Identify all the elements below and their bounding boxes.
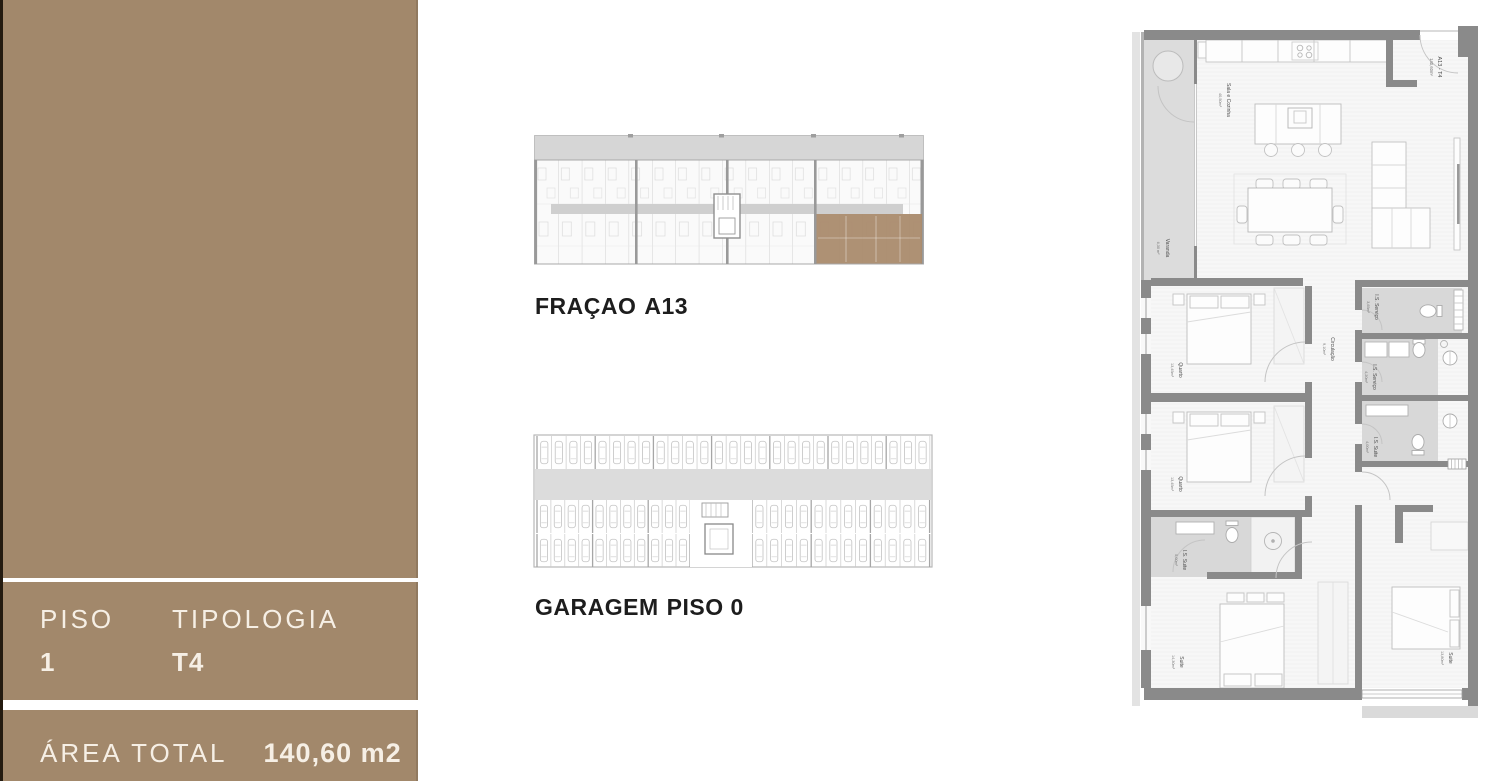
svg-text:Sala e Cozinha: Sala e Cozinha [1225,83,1231,117]
driving-lane [535,469,931,500]
floor-info: PISO 1 [40,604,114,678]
svg-text:I.S. Serviço: I.S. Serviço [1371,364,1377,390]
sidebar-info-panel: PISO 1 TIPOLOGIA T4 [0,582,418,700]
tv-console [1454,138,1460,250]
svg-text:40,50m²: 40,50m² [1218,93,1222,108]
svg-text:Quarto: Quarto [1177,476,1183,492]
facade-shadow [1132,32,1140,706]
garage-title-prefix: GARAGEM [535,594,659,620]
svg-text:Circulação: Circulação [1329,337,1335,361]
svg-text:3,65m²: 3,65m² [1366,301,1370,314]
typology-info: TIPOLOGIA T4 [172,604,339,678]
svg-text:13,80m²: 13,80m² [1440,651,1444,666]
svg-text:13,45m²: 13,45m² [1170,363,1174,378]
apartment-floorplan: A13 - T4 140,60m² Sala e Cozinha 40,50m²… [1128,22,1483,722]
svg-text:9,10m²: 9,10m² [1322,343,1326,356]
svg-text:Suite: Suite [1447,652,1453,664]
sidebar-area-panel: ÁREA TOTAL140,60 m2 [0,710,418,781]
kitchen-counter [1198,40,1388,62]
typology-value: T4 [172,647,339,678]
fraction-title-prefix: FRAÇAO [535,293,636,319]
garage-core [690,500,752,567]
svg-text:14,30m²: 14,30m² [1171,655,1175,670]
sidebar-left-edge [0,0,3,781]
svg-text:A13 - T4: A13 - T4 [1436,57,1442,78]
highlighted-unit [817,214,923,264]
bedroom2-furniture [1173,406,1304,482]
svg-text:Suite: Suite [1178,656,1184,668]
rear-balcony-strip [1362,706,1478,718]
svg-text:140,60m²: 140,60m² [1429,58,1434,76]
garage-title-highlight: PISO 0 [667,594,744,620]
fraction-title-highlight: A13 [644,293,688,319]
svg-text:Varanda: Varanda [1164,239,1170,258]
svg-text:I.S. Suite: I.S. Suite [1372,437,1378,458]
svg-text:5,00m²: 5,00m² [1174,554,1178,567]
floor-value: 1 [40,647,114,678]
svg-text:4,20m²: 4,20m² [1364,371,1368,384]
garage-title: GARAGEMPISO 0 [535,594,744,621]
fraction-title: FRAÇAOA13 [535,293,688,320]
terrace-table [1153,51,1183,81]
svg-text:6,30 m²: 6,30 m² [1156,242,1160,256]
building-roof [535,134,924,160]
svg-text:Quarto: Quarto [1177,362,1183,378]
kitchen-island [1255,104,1341,157]
total-area-value: 140,60 m2 [264,738,402,768]
svg-text:I.S. Suite: I.S. Suite [1181,550,1187,571]
svg-text:I.S. Serviço: I.S. Serviço [1373,294,1379,320]
suite-left-furniture [1220,582,1348,688]
shower-stall [1251,517,1295,577]
sidebar-brand-panel [0,0,418,578]
bedroom1-furniture [1173,288,1304,364]
typology-label: TIPOLOGIA [172,604,339,635]
svg-text:13,45m²: 13,45m² [1170,477,1174,492]
garage-floorplan [533,434,933,569]
svg-text:4,00m²: 4,00m² [1365,441,1369,454]
total-area-label: ÁREA TOTAL [40,738,228,768]
total-area-row: ÁREA TOTAL140,60 m2 [40,738,402,769]
stair-core [714,194,740,238]
tv-screen [1457,164,1460,224]
floor-label: PISO [40,604,114,635]
fraction-floorplan [533,134,925,266]
